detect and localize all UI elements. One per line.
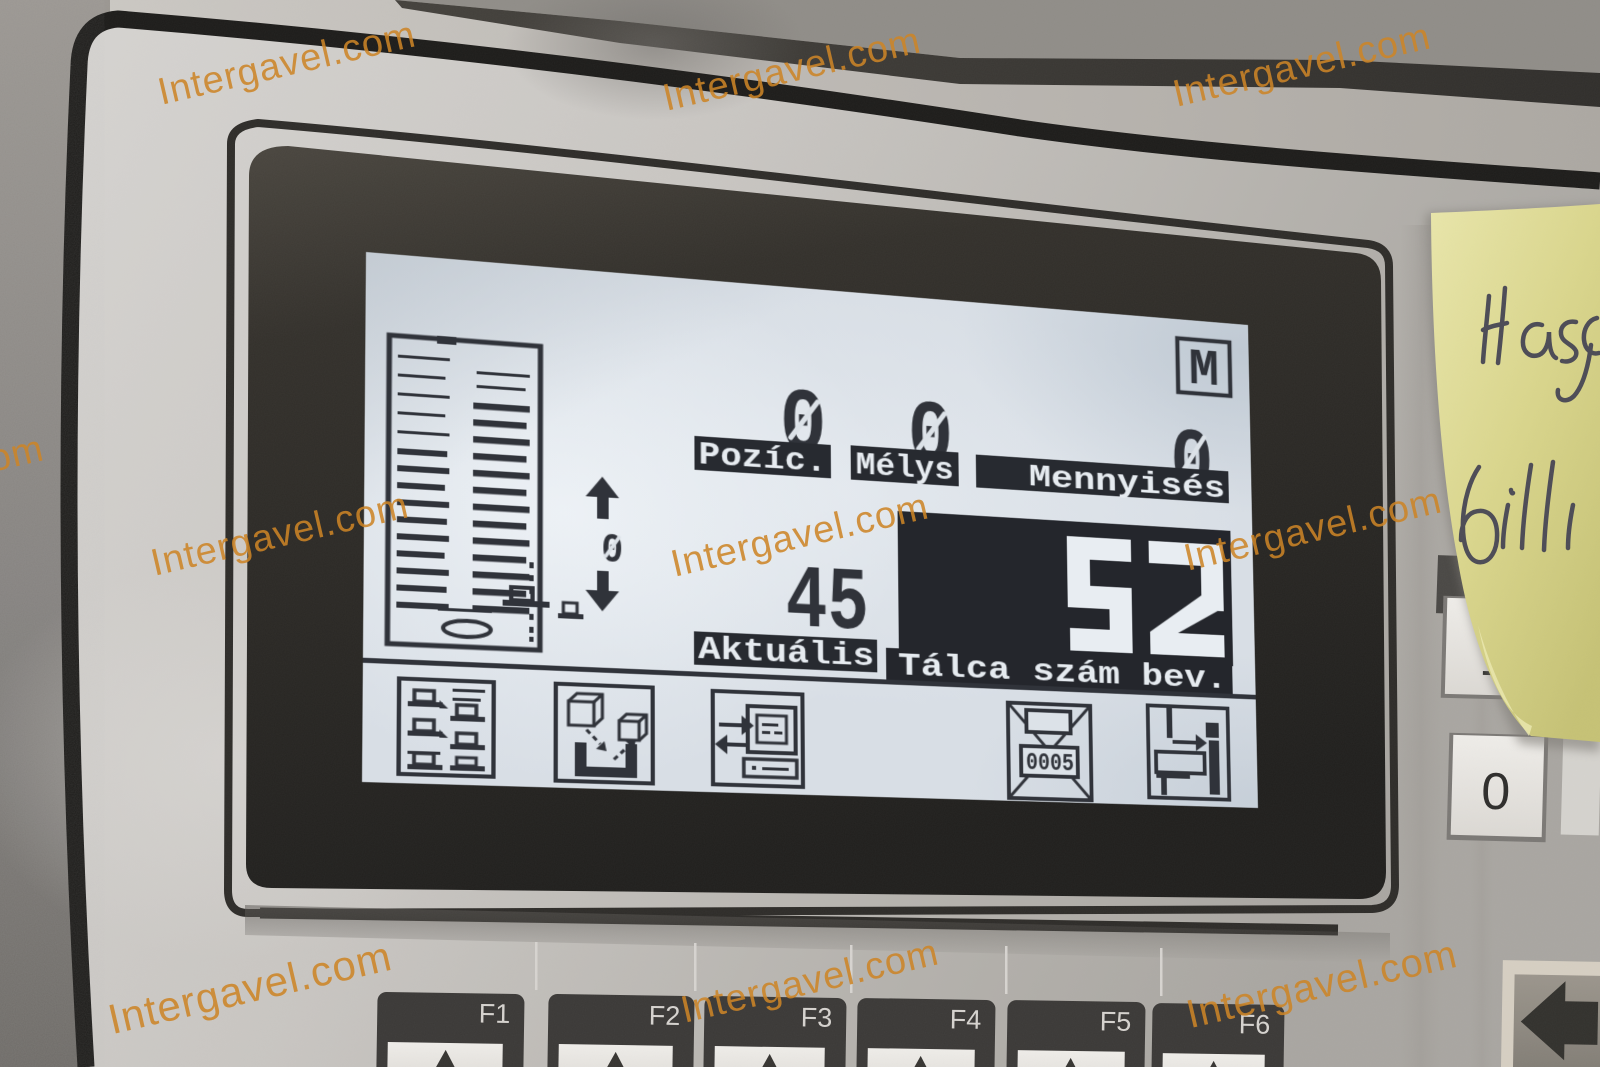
svg-text:Pozíc.: Pozíc. xyxy=(699,436,828,481)
svg-text:Mélys: Mélys xyxy=(856,446,954,489)
svg-text:Aktuális: Aktuális xyxy=(698,630,874,675)
svg-text:0005: 0005 xyxy=(1026,749,1074,777)
svg-text:0: 0 xyxy=(601,528,623,575)
svg-text:M: M xyxy=(1188,340,1219,401)
